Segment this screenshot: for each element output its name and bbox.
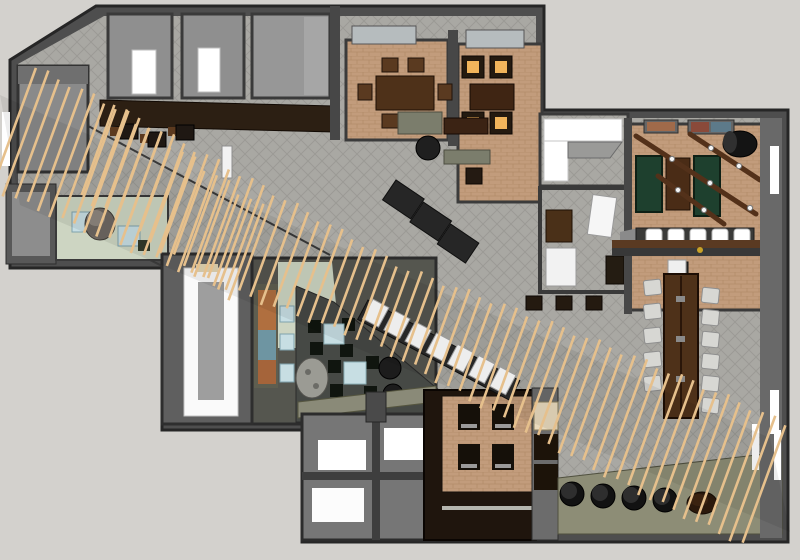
banquette-nook [540, 114, 628, 186]
bench-blue [280, 364, 294, 382]
lounge-chair [330, 384, 343, 397]
white-sofa [546, 248, 576, 286]
door-panel [132, 50, 156, 94]
pendant-light [669, 156, 674, 161]
chair-rail [495, 424, 511, 428]
podium [668, 260, 686, 274]
boulder-speckle [305, 369, 311, 375]
floor-stool-top [623, 487, 639, 503]
dining-chair [358, 84, 372, 100]
game-table-green [636, 156, 662, 212]
booth-seat-glow [495, 117, 507, 129]
communal-chair [643, 279, 661, 296]
lounge-table [344, 362, 366, 384]
floor-stool-top [592, 485, 608, 501]
lounge-chair [310, 342, 323, 355]
lounge-chair [340, 344, 353, 357]
lounge-chair [328, 360, 341, 373]
communal-chair [701, 309, 719, 326]
dining-chair [438, 84, 452, 100]
partition-wall [372, 414, 380, 540]
dark-cushion [534, 434, 558, 460]
chair-rail [461, 464, 477, 468]
pendant-light [701, 207, 706, 212]
chair-rail [461, 424, 477, 428]
door-white [770, 146, 779, 194]
chair-rail [495, 464, 511, 468]
communal-chair [643, 303, 661, 320]
picture-art [691, 122, 709, 132]
stool [556, 296, 572, 310]
white-banquette [544, 119, 622, 141]
floor-plan-render [0, 0, 800, 560]
restroom-floor [312, 488, 364, 522]
dark-cushion [534, 464, 558, 490]
dining-chair [408, 58, 424, 72]
boulder-speckle [313, 383, 319, 389]
desk [546, 210, 572, 242]
light-well-core [198, 282, 224, 400]
lounge-chair [366, 356, 379, 369]
dining-chair [382, 58, 398, 72]
dark-chair [606, 256, 624, 284]
communal-chair [701, 331, 719, 348]
white-banquette [544, 141, 568, 181]
drum-cap [723, 131, 737, 153]
restroom-floor [384, 428, 426, 460]
gold-fitting [697, 247, 703, 253]
pendant-light [747, 205, 752, 210]
booth-seat-glow [467, 61, 479, 73]
table-candle [676, 296, 685, 302]
communal-chair [701, 353, 719, 370]
left-room-shade [18, 66, 88, 84]
dining-chair [382, 114, 398, 128]
pendant-light [736, 163, 741, 168]
skylight [352, 26, 416, 44]
host-wall [398, 112, 442, 134]
restroom-floor [318, 440, 366, 470]
white-table [587, 195, 616, 238]
mural-art-orange2 [258, 360, 276, 384]
stool [466, 168, 482, 184]
picture-art [647, 122, 675, 131]
pendant-light [708, 145, 713, 150]
dining-table [376, 76, 434, 110]
booth-seat-glow [495, 61, 507, 73]
restrooms [302, 392, 434, 540]
round-table-black [416, 136, 440, 160]
host-wall [444, 150, 490, 164]
partition-wall [302, 472, 434, 480]
step-line [442, 506, 534, 510]
table [176, 125, 194, 140]
room-3-light-face [304, 17, 328, 95]
boulder [296, 358, 328, 398]
table-candle [676, 336, 685, 342]
floor-plan-svg [0, 0, 800, 560]
bench-blue [280, 334, 294, 350]
picture-art [711, 122, 731, 132]
wall [624, 118, 632, 314]
dining-table [470, 84, 514, 110]
door-panel [198, 48, 220, 92]
stool [526, 296, 542, 310]
pendant-light [675, 187, 680, 192]
pendant-light [707, 180, 712, 185]
wall [330, 6, 340, 140]
stool [586, 296, 602, 310]
upper-left-service-rooms [100, 14, 334, 132]
mural-art-teal [258, 330, 276, 360]
pillar [366, 392, 386, 422]
communal-chair [701, 375, 719, 392]
ledge-wood [612, 240, 762, 248]
service-bench [444, 118, 488, 134]
low-wall [612, 248, 762, 256]
floor-stool-top [561, 483, 577, 499]
communal-chair [701, 287, 719, 304]
communal-chair [643, 327, 661, 344]
skylight [466, 30, 524, 48]
